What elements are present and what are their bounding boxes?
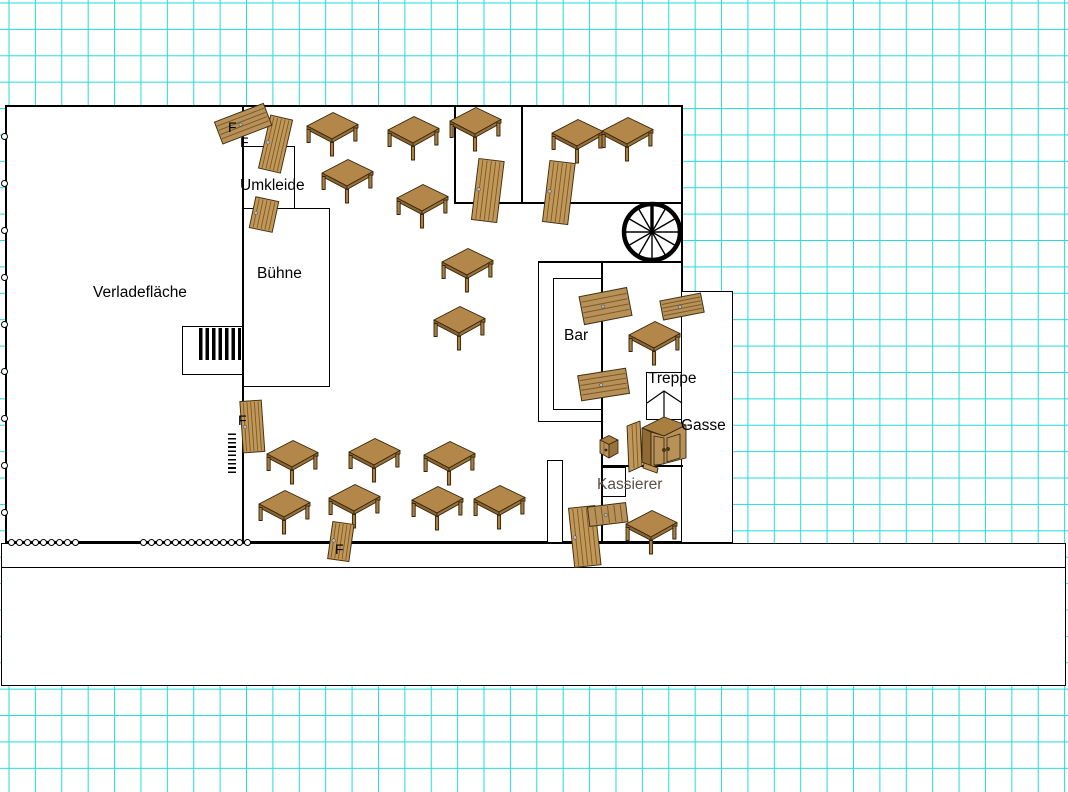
table[interactable] (473, 484, 526, 535)
scallop-mark (40, 539, 47, 546)
column (547, 460, 563, 543)
table[interactable] (411, 485, 464, 536)
scallop-mark (64, 539, 71, 546)
wall-mark (1, 509, 8, 516)
label-f-2: F (240, 135, 249, 150)
door-leaf[interactable] (239, 399, 266, 458)
table[interactable] (423, 440, 476, 491)
label-f-1: F (228, 120, 237, 135)
table[interactable] (306, 111, 359, 162)
scallop-mark (148, 539, 155, 546)
bottom-corridor-lower (1, 567, 1066, 686)
scallop-mark (140, 539, 147, 546)
table[interactable] (321, 158, 374, 209)
scallop-mark (164, 539, 171, 546)
scallop-mark (24, 539, 31, 546)
scallop-mark (204, 539, 211, 546)
scallop-mark (220, 539, 227, 546)
scallop-mark (156, 539, 163, 546)
table[interactable] (449, 106, 502, 157)
table[interactable] (601, 116, 654, 167)
table[interactable] (628, 320, 681, 371)
label-kassierer: Kassierer (597, 477, 662, 493)
label-treppe: Treppe (648, 371, 697, 387)
wall-mark (1, 462, 8, 469)
scallop-mark (16, 539, 23, 546)
crate[interactable] (599, 433, 619, 466)
cabinet[interactable] (624, 412, 688, 479)
scallop-mark (180, 539, 187, 546)
wall-mark (1, 368, 8, 375)
table[interactable] (396, 183, 449, 234)
wall-mark (1, 415, 8, 422)
table[interactable] (348, 437, 401, 488)
label-f-4: F (335, 542, 344, 557)
table[interactable] (258, 489, 311, 540)
loading-gate-stripes (199, 328, 241, 360)
scallop-mark (236, 539, 243, 546)
floorplan-canvas: VerladeflächeUmkleideBühneBarTreppeGasse… (0, 0, 1068, 792)
spiral-staircase[interactable] (619, 199, 685, 270)
scallop-mark (48, 539, 55, 546)
scallop-mark (8, 539, 15, 546)
label-verladeflaeche: Verladefläche (93, 285, 187, 301)
wall-mark (1, 321, 8, 328)
label-umkleide: Umkleide (240, 178, 305, 194)
scallop-mark (172, 539, 179, 546)
wood-plank-panel[interactable] (587, 502, 630, 533)
table[interactable] (441, 247, 494, 298)
wall-mark (1, 133, 8, 140)
table[interactable] (433, 305, 486, 356)
label-f-3: F (238, 413, 247, 428)
scallop-mark (56, 539, 63, 546)
wall-toproom-mid (521, 106, 523, 203)
scallop-mark (244, 539, 251, 546)
wall-mark (1, 274, 8, 281)
wall-mark (1, 180, 8, 187)
table[interactable] (625, 509, 678, 560)
scallop-mark (188, 539, 195, 546)
wall-mark (1, 227, 8, 234)
table[interactable] (387, 115, 440, 166)
label-buehne: Bühne (257, 266, 302, 282)
ladder-symbol (228, 431, 236, 473)
label-gasse: Gasse (681, 418, 726, 434)
scallop-mark (196, 539, 203, 546)
table[interactable] (266, 439, 319, 490)
scallop-mark (228, 539, 235, 546)
scallop-mark (32, 539, 39, 546)
bottom-corridor-upper (1, 543, 1066, 569)
label-bar: Bar (564, 328, 588, 344)
scallop-mark (212, 539, 219, 546)
scallop-mark (72, 539, 79, 546)
